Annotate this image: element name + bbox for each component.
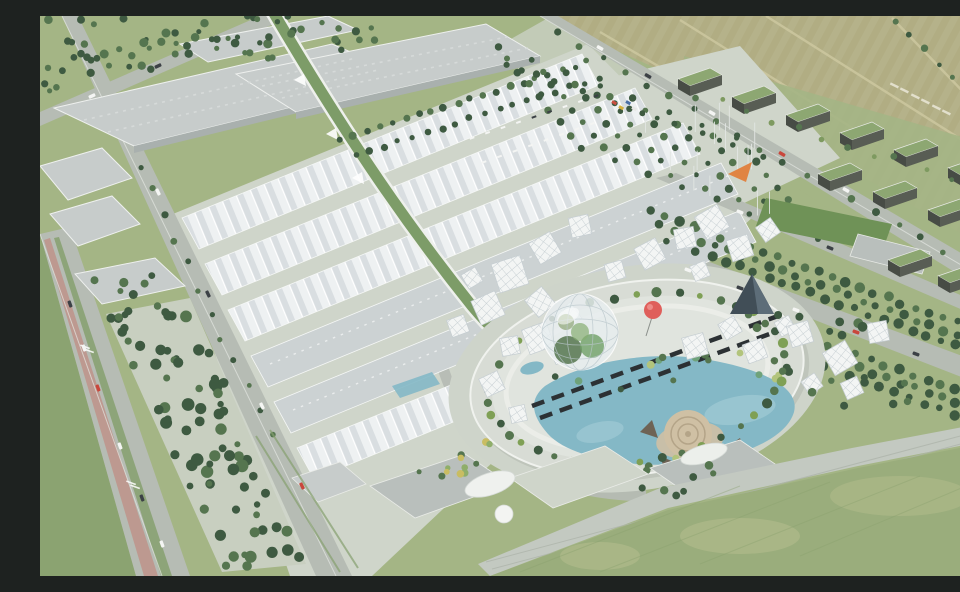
geodesic-dome — [542, 294, 618, 370]
masterplan-scene — [40, 16, 960, 576]
drum-pavilion — [495, 505, 513, 523]
aerial-render: Aerial 3D rendering of an exhibition-cen… — [40, 16, 960, 576]
